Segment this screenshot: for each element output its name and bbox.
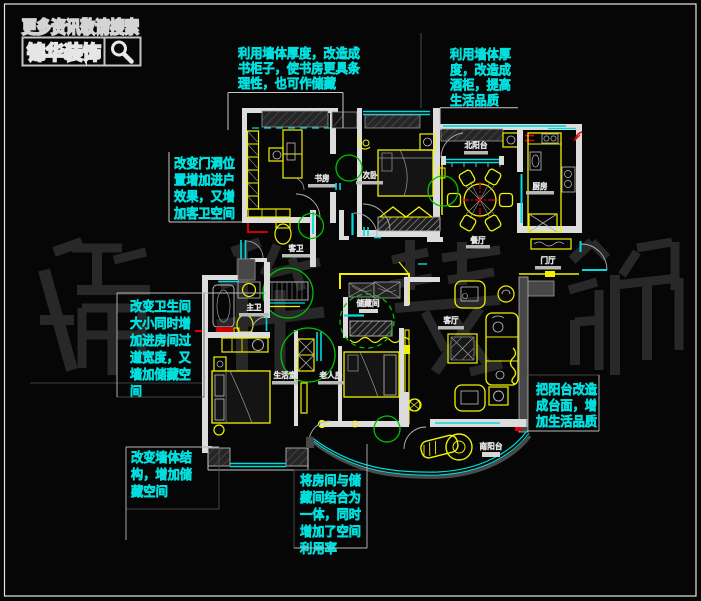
svg-text:储藏间: 储藏间 <box>357 298 380 308</box>
svg-text:成台面，增: 成台面，增 <box>536 398 597 413</box>
svg-text:把阳台改造: 把阳台改造 <box>536 382 597 397</box>
svg-text:将房间与储: 将房间与储 <box>300 473 361 488</box>
svg-text:加客卫空间: 加客卫空间 <box>174 206 235 221</box>
svg-text:书房: 书房 <box>315 173 330 183</box>
svg-text:次卧: 次卧 <box>363 170 378 180</box>
svg-text:客卫: 客卫 <box>289 243 304 253</box>
svg-text:利用墙体厚: 利用墙体厚 <box>450 47 511 62</box>
svg-text:更多资讯敬请搜索: 更多资讯敬请搜索 <box>22 17 139 37</box>
svg-text:主卫: 主卫 <box>247 302 262 312</box>
svg-text:门厅: 门厅 <box>541 255 556 265</box>
svg-text:加生活品质: 加生活品质 <box>536 414 597 429</box>
svg-text:北阳台: 北阳台 <box>465 140 488 150</box>
svg-text:南阳台: 南阳台 <box>480 441 503 451</box>
svg-text:一体，同时: 一体，同时 <box>300 507 361 522</box>
svg-text:效果，又增: 效果，又增 <box>174 189 235 204</box>
svg-text:理性，也可作储藏: 理性，也可作储藏 <box>238 76 336 91</box>
svg-text:利用率: 利用率 <box>300 541 337 556</box>
svg-text:酒柜，提高: 酒柜，提高 <box>450 78 511 93</box>
svg-text:厨房: 厨房 <box>533 181 548 191</box>
svg-text:藏空间: 藏空间 <box>131 484 168 499</box>
svg-text:置增加进户: 置增加进户 <box>174 173 235 188</box>
svg-text:加进房间过: 加进房间过 <box>130 333 191 348</box>
svg-text:利用墙体厚度，改造成: 利用墙体厚度，改造成 <box>238 46 360 61</box>
svg-text:锦华装饰: 锦华装饰 <box>27 41 101 64</box>
svg-text:改变卫生间: 改变卫生间 <box>130 299 191 314</box>
svg-text:生活品质: 生活品质 <box>450 93 499 108</box>
svg-text:改变门洞位: 改变门洞位 <box>174 156 235 171</box>
svg-text:生活室: 生活室 <box>274 370 297 380</box>
svg-text:大小同时增: 大小同时增 <box>130 316 191 331</box>
svg-text:增加了空间: 增加了空间 <box>300 524 361 539</box>
svg-text:老人房: 老人房 <box>320 370 343 380</box>
svg-text:书柜子，使书房更具条: 书柜子，使书房更具条 <box>238 61 360 76</box>
svg-text:墙加储藏空: 墙加储藏空 <box>130 367 191 382</box>
svg-text:客厅: 客厅 <box>444 315 459 325</box>
svg-text:道宽度，又: 道宽度，又 <box>130 350 191 365</box>
svg-text:度，改造成: 度，改造成 <box>450 62 511 77</box>
svg-text:藏间结合为: 藏间结合为 <box>300 490 361 505</box>
svg-text:构，增加储: 构，增加储 <box>131 467 192 482</box>
svg-text:餐厅: 餐厅 <box>471 236 486 245</box>
svg-text:改变墙体结: 改变墙体结 <box>131 450 192 465</box>
